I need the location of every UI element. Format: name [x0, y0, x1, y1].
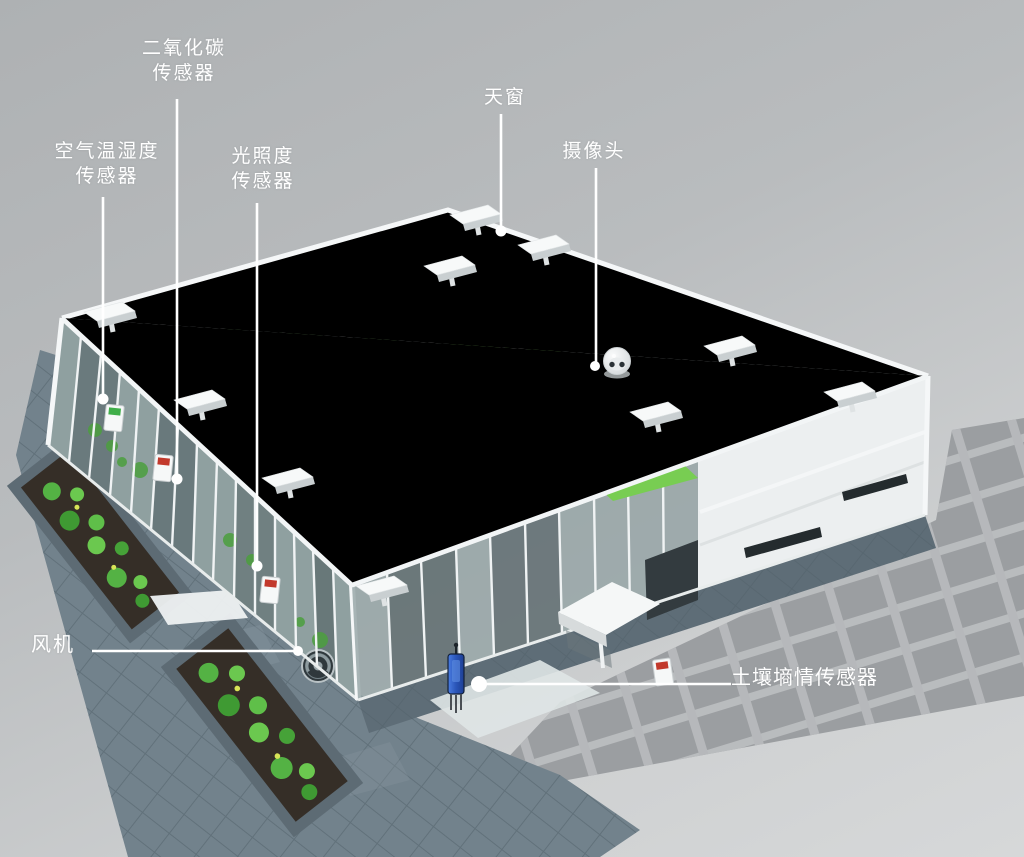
- label-line: 传感器: [126, 61, 242, 86]
- callout-label-light-sensor: 光照度 传感器: [216, 144, 310, 194]
- label-line: 传感器: [216, 169, 310, 194]
- label-line: 土壤墒情传感器: [731, 666, 907, 691]
- label-line: 摄像头: [554, 139, 634, 164]
- label-line: 光照度: [216, 144, 310, 169]
- label-line: 风机: [31, 633, 91, 658]
- callout-label-fan: 风机: [31, 633, 91, 658]
- callout-label-skylight: 天窗: [468, 85, 542, 110]
- callout-label-co2-sensor: 二氧化碳 传感器: [126, 36, 242, 86]
- label-line: 空气温湿度: [46, 139, 168, 164]
- greenhouse-illustration: [0, 0, 1024, 857]
- dome-camera: [604, 348, 631, 379]
- greenhouse-annotated-render: 二氧化碳 传感器 空气温湿度 传感器 光照度 传感器 天窗 摄像头 风机 土壤墒…: [0, 0, 1024, 857]
- label-line: 二氧化碳: [126, 36, 242, 61]
- label-line: 传感器: [46, 164, 168, 189]
- callout-label-air-temp-humidity-sensor: 空气温湿度 传感器: [46, 139, 168, 189]
- label-line: 天窗: [468, 85, 542, 110]
- callout-label-soil-moisture-sensor: 土壤墒情传感器: [731, 666, 907, 691]
- callout-label-camera: 摄像头: [554, 139, 634, 164]
